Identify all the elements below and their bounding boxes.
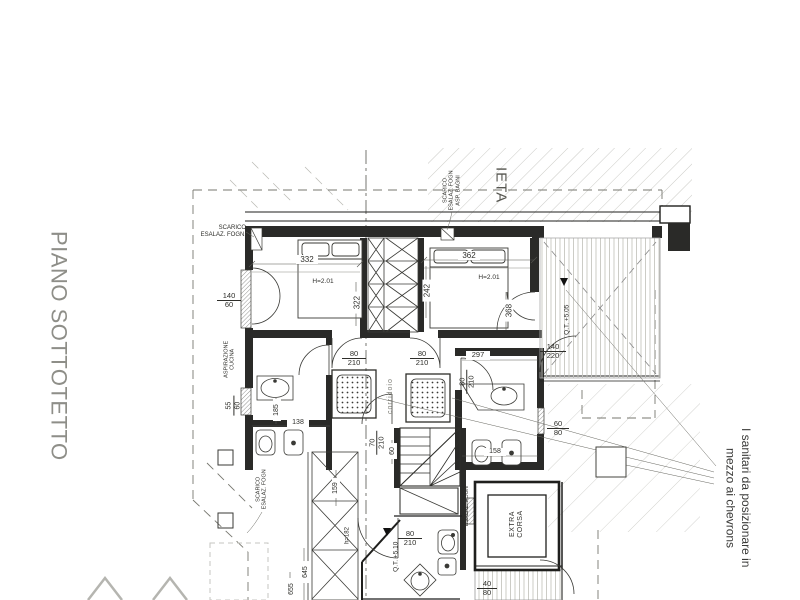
window-label-terrace2: 4080 — [477, 571, 497, 600]
height-wardrobe-label: h=182 — [345, 521, 352, 549]
door-label-corr-left: 80210 — [342, 341, 366, 377]
dim-322: 322 — [352, 292, 361, 314]
floor-title: PIANO SOTTOTETTO — [46, 162, 71, 530]
door-label-terrace: 140220 — [540, 334, 566, 370]
wardrobe-top — [368, 238, 418, 332]
dim-645: 645 — [302, 561, 310, 583]
cropped-word-label: IETA — [492, 153, 509, 217]
dim-158: 158 — [484, 448, 506, 456]
scarico-bottom-label: SCARICO ESALAZ. FOGN — [256, 464, 269, 514]
corridoio-label: corridoio — [387, 374, 395, 418]
door-label-bath2: 80210 — [449, 370, 485, 394]
dim-368: 368 — [504, 300, 513, 322]
dim-655: 655 — [288, 578, 296, 600]
esalaz-lift-label: ESALAZ. FOGN — [464, 483, 470, 529]
height-bed2-label: H=2.01 — [472, 274, 506, 281]
dim-138: 138 — [287, 419, 309, 427]
shower-tray-left — [332, 370, 376, 418]
window-label-bed1: 14060 — [217, 283, 241, 319]
shower-tray-right — [406, 374, 450, 422]
dim-242: 242 — [422, 280, 431, 302]
dim-362: 362 — [458, 251, 480, 260]
floorplan-canvas: PIANO SOTTOTETTO I sanitari da posiziona… — [0, 0, 800, 600]
stairs — [400, 428, 460, 486]
door-label-hall: 70210 — [359, 431, 395, 455]
dim-159: 159 — [332, 478, 340, 498]
dim-297: 297 — [466, 351, 490, 360]
floorplan-drawing — [0, 0, 800, 600]
window-label-bath1: 5560 — [217, 396, 250, 416]
height-bed1-label: H=2.01 — [306, 278, 340, 285]
scarico-left-label: SCARICO ESALAZ. FOGN. — [192, 225, 246, 239]
dim-332: 332 — [296, 255, 318, 264]
door-label-bath3: 80210 — [398, 521, 422, 557]
dim-185: 185 — [273, 399, 281, 421]
chevron-marks — [88, 578, 187, 600]
door-label-corr-right: 80210 — [410, 341, 434, 377]
note-sanitari: I sanitari da posizionare in mezzo ai ch… — [722, 393, 753, 600]
scarico-top-label: SCARICO ESALAZ. FOGN ASP. BAGNI — [443, 152, 462, 228]
aspirazione-label: ASPIRAZIONE CUCINA — [224, 333, 237, 385]
extra-corsa-label: EXTRA CORSA — [509, 504, 525, 544]
window-label-bath2: 6080 — [547, 411, 569, 447]
